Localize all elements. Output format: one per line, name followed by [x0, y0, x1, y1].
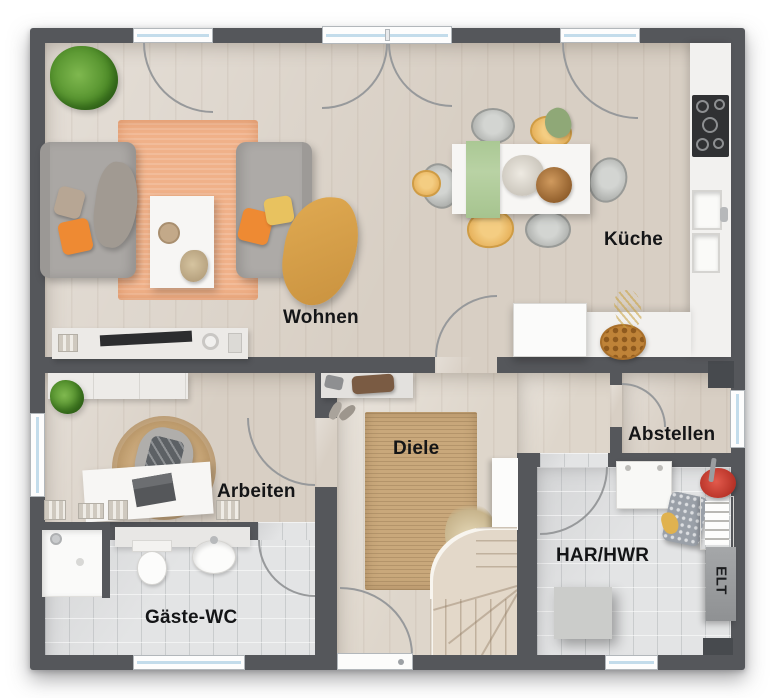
label-diele: Diele [393, 438, 439, 460]
wall [315, 487, 337, 655]
label-arbeiten: Arbeiten [217, 481, 296, 503]
burner [714, 99, 725, 110]
toilet [137, 551, 167, 585]
burner [696, 138, 709, 151]
stair-landing [492, 458, 518, 530]
burner [713, 138, 724, 149]
copper-bowl [536, 167, 572, 203]
window-kitchen [560, 28, 640, 43]
bag [351, 374, 394, 395]
label-har-hwr: HAR/HWR [556, 545, 649, 567]
label-elt: ELT [713, 551, 730, 611]
wash-basin [192, 540, 236, 574]
burner [702, 117, 718, 133]
wall [610, 373, 622, 385]
washing-machine [616, 461, 672, 509]
wall [497, 357, 731, 373]
books [216, 500, 240, 520]
wall [517, 453, 537, 655]
window-storage [730, 390, 745, 448]
chimney-block [703, 638, 733, 655]
doorway-living-diele [435, 357, 497, 373]
cooktop [692, 95, 729, 157]
dining-chair [412, 170, 441, 197]
pillow [57, 217, 94, 256]
doorway-har [540, 453, 608, 467]
dining-chair [471, 108, 515, 144]
burner [696, 100, 709, 113]
table-runner [466, 141, 500, 218]
speaker [202, 333, 219, 350]
patio-double-door [322, 26, 452, 44]
door-handle [398, 659, 404, 665]
window-wc [133, 655, 245, 670]
floor-plan-canvas: Wohnen Küche Arbeiten Diele Abstellen HA… [0, 0, 775, 698]
shower-head [50, 533, 62, 545]
machine-knob [657, 465, 663, 471]
label-abstellen: Abstellen [628, 424, 715, 446]
shower-drain [76, 558, 84, 566]
utility-shelf [700, 496, 734, 550]
potted-plant [50, 46, 118, 110]
doorway-arbeiten [315, 418, 337, 487]
doorway-abstellen [610, 385, 622, 427]
faucet [720, 207, 728, 222]
dryer [554, 587, 612, 639]
chimney-block [708, 361, 734, 388]
label-wohnen: Wohnen [283, 307, 359, 329]
floor-corridor [517, 373, 610, 453]
books [78, 503, 104, 519]
window-living [133, 28, 213, 43]
staircase [430, 527, 517, 655]
kitchen-sink [692, 190, 722, 230]
label-kueche: Küche [604, 229, 663, 251]
wall [45, 357, 435, 373]
wall [610, 427, 622, 453]
dining-chair [525, 211, 571, 248]
books [44, 500, 66, 520]
books [108, 500, 128, 520]
window-office [30, 413, 45, 497]
door-mullion [385, 29, 390, 41]
books [58, 334, 78, 352]
fruit-bowl [600, 324, 646, 360]
shower-wall [102, 522, 110, 598]
stair-treads-lower [430, 599, 517, 655]
tray [158, 222, 180, 244]
fridge [513, 303, 587, 357]
bucket [700, 468, 736, 498]
small-plant [50, 380, 84, 414]
shower-wall [40, 522, 110, 530]
entrance-door [337, 653, 413, 670]
machine-knob [625, 465, 631, 471]
kitchen-sink [692, 233, 720, 273]
window-utility [605, 655, 658, 670]
pillow [263, 195, 295, 226]
doorway-wc [258, 522, 315, 540]
stair-treads-upper [476, 527, 517, 579]
label-gaeste-wc: Gäste-WC [145, 607, 237, 629]
sideboard-box [228, 333, 242, 353]
basin-faucet [210, 536, 218, 544]
